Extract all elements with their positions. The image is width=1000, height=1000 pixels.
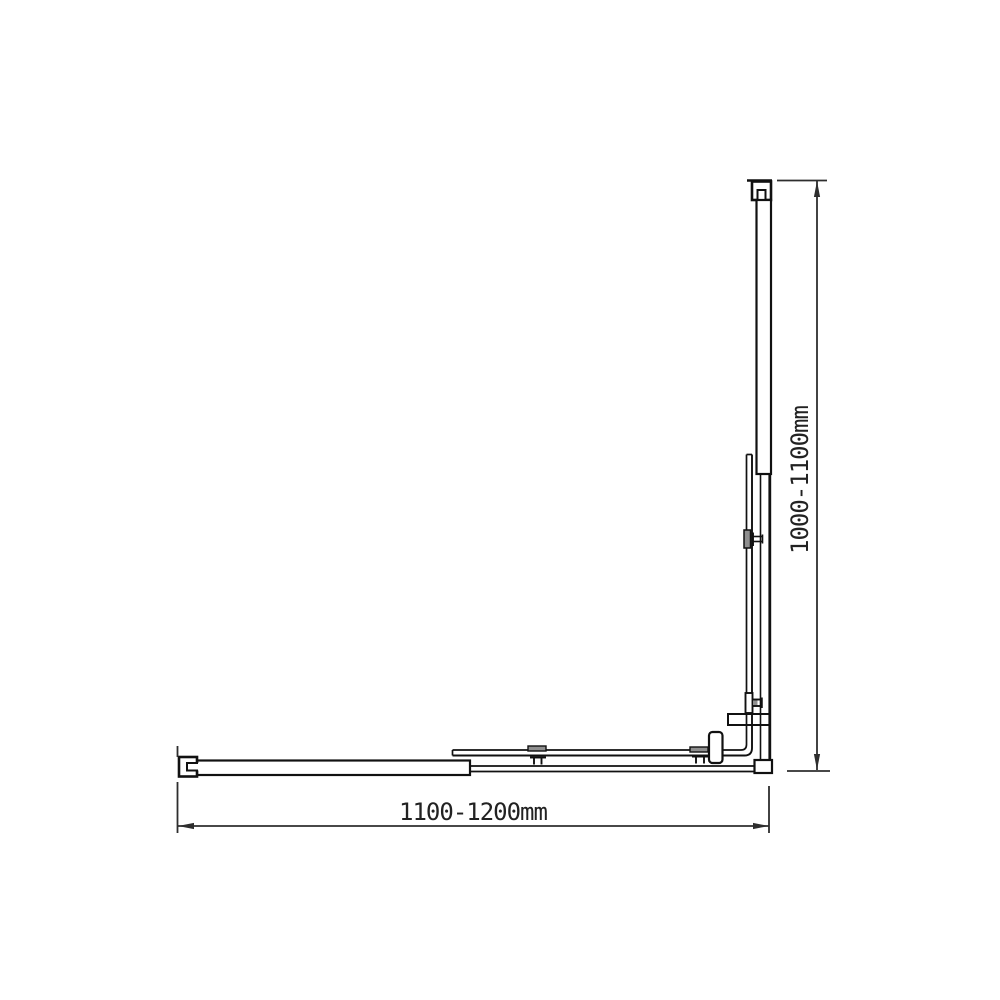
roller-knob: [709, 732, 723, 763]
bottom-rail: [197, 761, 470, 776]
technical-drawing: 1000-1100mm 1100-1200mm: [0, 0, 1000, 1000]
arrow-left-icon: [178, 823, 194, 829]
drawing-canvas: 1000-1100mm 1100-1200mm: [0, 0, 1000, 1000]
wall-profile-top: [747, 181, 772, 202]
height-dimension: 1000-1100mm: [777, 181, 830, 772]
corner-shelf-bracket: [728, 714, 770, 725]
arrow-down-icon: [814, 754, 820, 770]
floor-foot-block: [755, 760, 773, 773]
side-panel-lower-profile: [761, 474, 770, 761]
bottom-rail-extension: [470, 766, 755, 772]
width-dimension: 1100-1200mm: [178, 746, 770, 833]
arrow-right-icon: [753, 823, 769, 829]
height-dimension-label: 1000-1100mm: [786, 405, 814, 553]
width-dimension-label: 1100-1200mm: [399, 798, 547, 826]
wall-profile-left: [179, 757, 199, 777]
side-door-panel: [757, 200, 772, 474]
arrow-up-icon: [814, 181, 820, 197]
inner-glass-panel: [453, 455, 753, 756]
